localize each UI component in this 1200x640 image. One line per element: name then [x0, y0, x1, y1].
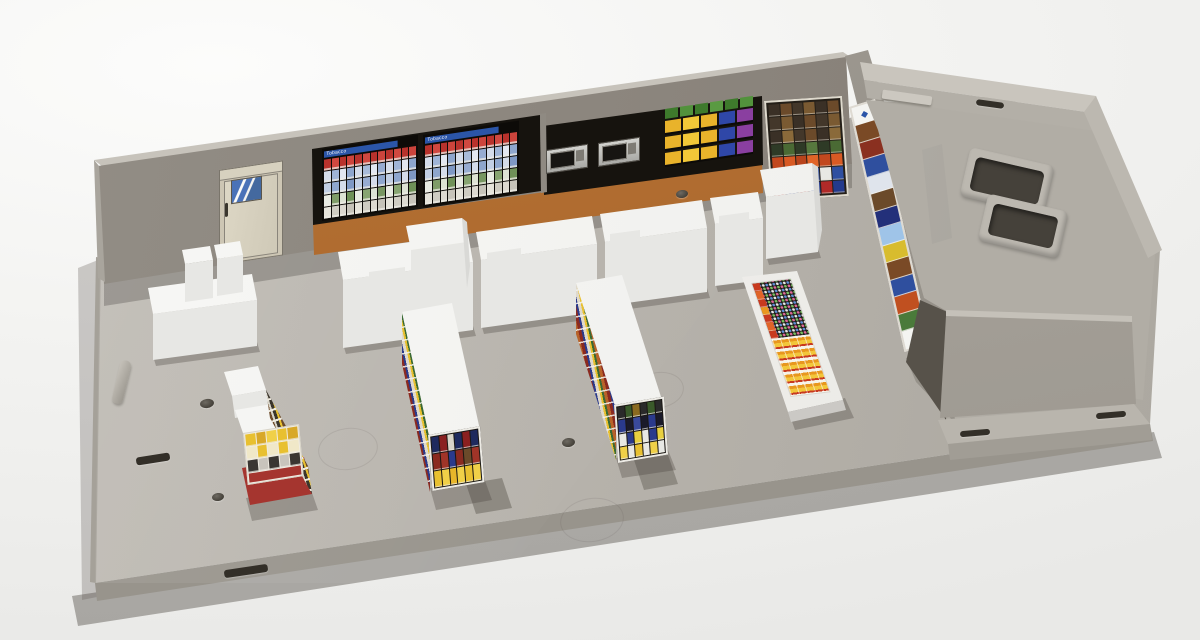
product-cell — [448, 153, 455, 165]
product-cell — [347, 179, 354, 191]
product-cell — [781, 117, 793, 130]
product-cell — [656, 413, 663, 426]
product-cell — [503, 157, 510, 169]
product-cell — [719, 127, 735, 141]
product-cell — [441, 166, 448, 178]
product-cell — [402, 171, 409, 183]
product-cell — [619, 433, 626, 446]
product-cell — [456, 176, 463, 188]
product-cell — [464, 151, 471, 163]
product-cell — [277, 428, 288, 442]
product-cell — [442, 469, 450, 486]
product-cell — [827, 100, 839, 113]
product-cell — [290, 452, 301, 466]
product-cell — [737, 140, 753, 154]
product-cell — [470, 430, 478, 447]
product-cell — [794, 129, 806, 142]
product-cell — [464, 163, 471, 175]
product-cell — [371, 164, 378, 176]
product-cell — [355, 178, 362, 190]
product-cell — [386, 149, 393, 161]
microwave-controls — [576, 149, 584, 161]
product-cell — [324, 171, 331, 183]
product-cell — [363, 201, 370, 213]
product-cell — [355, 166, 362, 178]
product-cell — [386, 173, 393, 185]
product-cell — [371, 188, 378, 200]
product-cell — [828, 113, 840, 126]
product-cell — [710, 100, 723, 112]
product-cell — [402, 183, 409, 195]
product-cell — [439, 435, 447, 452]
product-cell — [655, 400, 662, 413]
product-cell — [441, 154, 448, 166]
product-cell — [472, 150, 479, 162]
product-cell — [448, 451, 456, 468]
product-cell — [627, 445, 634, 458]
product-cell — [701, 129, 717, 143]
product-cell — [737, 124, 753, 138]
product-cell — [355, 190, 362, 202]
product-cell — [618, 420, 625, 433]
product-cell — [409, 170, 416, 182]
product-cell — [371, 200, 378, 212]
product-cell — [831, 153, 843, 166]
product-cell — [394, 160, 401, 172]
product-cell — [640, 403, 647, 416]
product-cell — [463, 431, 471, 448]
product-cell — [455, 432, 463, 449]
product-cell — [816, 101, 828, 114]
product-cell — [433, 453, 441, 470]
product-cell — [425, 193, 432, 205]
product-cell — [770, 131, 782, 144]
product-cell — [830, 140, 842, 153]
product-cell — [347, 203, 354, 215]
product-cell — [633, 417, 640, 430]
product-cell — [817, 128, 829, 141]
product-cell — [495, 170, 502, 182]
product-cell — [510, 144, 517, 156]
product-cell — [665, 151, 681, 165]
product-cell — [440, 452, 448, 469]
product-cell — [332, 194, 339, 206]
product-cell — [818, 141, 830, 154]
product-cell — [266, 430, 277, 444]
product-cell — [495, 158, 502, 170]
product-cell — [503, 169, 510, 181]
product-cell — [725, 98, 738, 110]
product-cell — [642, 442, 649, 455]
product-cell — [503, 181, 510, 193]
product-cell — [806, 128, 818, 141]
product-cell — [257, 444, 268, 458]
product-cell — [441, 142, 448, 154]
product-cell — [647, 401, 654, 414]
basin-interior — [987, 203, 1059, 249]
product-cell — [472, 174, 479, 186]
product-cell — [768, 104, 780, 117]
product-cell — [472, 162, 479, 174]
product-cell — [456, 188, 463, 200]
product-cell — [378, 199, 385, 211]
product-cell — [324, 207, 331, 219]
product-cell — [340, 204, 347, 216]
product-cell — [431, 436, 439, 453]
product-cell — [371, 152, 378, 164]
product-cell — [487, 171, 494, 183]
product-cell — [289, 439, 300, 453]
product-cell — [487, 159, 494, 171]
product-cell — [740, 96, 753, 108]
product-cell — [510, 180, 517, 192]
photo-stage: Tobacco Tobacco — [0, 0, 1200, 640]
product-cell — [347, 155, 354, 167]
product-cell — [701, 113, 717, 127]
product-cell — [402, 147, 409, 159]
product-cell — [832, 167, 844, 180]
product-cell — [642, 429, 649, 442]
product-cell — [625, 405, 632, 418]
product-cell — [683, 116, 699, 130]
product-cell — [683, 148, 699, 162]
product-cell — [464, 187, 471, 199]
product-cell — [819, 154, 831, 167]
product-cell — [665, 135, 681, 149]
product-cell — [650, 441, 657, 454]
product-cell — [495, 146, 502, 158]
product-cell — [783, 143, 795, 156]
product-cell — [394, 196, 401, 208]
product-cell — [701, 145, 717, 159]
door-handle — [225, 203, 228, 217]
product-cell — [473, 464, 481, 481]
product-cell — [456, 449, 464, 466]
product-cell — [780, 103, 792, 116]
product-cell — [340, 168, 347, 180]
product-cell — [386, 185, 393, 197]
product-cell — [657, 427, 664, 440]
product-cell — [402, 195, 409, 207]
product-cell — [363, 153, 370, 165]
product-cell — [503, 145, 510, 157]
product-cell — [378, 151, 385, 163]
product-cell — [433, 144, 440, 156]
product-cell — [332, 158, 339, 170]
product-cell — [340, 180, 347, 192]
product-cell — [479, 161, 486, 173]
product-cell — [363, 189, 370, 201]
product-cell — [447, 434, 455, 451]
door-window — [231, 176, 262, 205]
product-cell — [409, 146, 416, 158]
product-cell — [620, 446, 627, 459]
product-cell — [782, 130, 794, 143]
product-cell — [464, 175, 471, 187]
product-cell — [457, 466, 465, 483]
product-cell — [456, 152, 463, 164]
product-cell — [248, 459, 259, 473]
product-cell — [465, 465, 473, 482]
product-cell — [649, 428, 656, 441]
product-cell — [371, 176, 378, 188]
product-cell — [627, 432, 634, 445]
product-cell — [441, 178, 448, 190]
product-cell — [683, 132, 699, 146]
product-cell — [347, 191, 354, 203]
product-cell — [278, 441, 289, 455]
product-cell — [792, 102, 804, 115]
product-cell — [433, 180, 440, 192]
product-cell — [769, 117, 781, 130]
product-cell — [510, 168, 517, 180]
product-cell — [402, 159, 409, 171]
product-cell — [425, 181, 432, 193]
product-cell — [472, 186, 479, 198]
product-cell — [425, 145, 432, 157]
product-cell — [268, 443, 279, 457]
product-cell — [805, 115, 817, 128]
product-cell — [347, 167, 354, 179]
product-cell — [472, 138, 479, 150]
product-cell — [464, 139, 471, 151]
product-cell — [665, 119, 681, 133]
microwave-window — [602, 143, 627, 163]
product-cell — [425, 157, 432, 169]
product-cell — [635, 444, 642, 457]
product-cell — [450, 468, 458, 485]
product-cell — [324, 195, 331, 207]
product-cell — [448, 141, 455, 153]
product-cell — [807, 142, 819, 155]
product-cell — [355, 202, 362, 214]
product-cell — [719, 111, 735, 125]
product-cell — [434, 470, 442, 487]
product-cell — [433, 156, 440, 168]
product-cell — [332, 170, 339, 182]
product-cell — [617, 406, 624, 419]
product-cell — [378, 175, 385, 187]
product-cell — [793, 116, 805, 129]
product-cell — [657, 440, 664, 453]
product-cell — [464, 448, 472, 465]
product-cell — [448, 177, 455, 189]
product-cell — [456, 164, 463, 176]
product-cell — [833, 180, 845, 193]
product-cell — [648, 415, 655, 428]
product-cell — [737, 108, 753, 122]
product-cell — [441, 190, 448, 202]
product-cell — [258, 457, 269, 471]
product-cell — [332, 182, 339, 194]
product-cell — [340, 156, 347, 168]
product-cell — [394, 172, 401, 184]
product-cell — [456, 140, 463, 152]
product-cell — [495, 182, 502, 194]
cigarette-rack-left: Tobacco — [322, 135, 418, 221]
product-cell — [817, 114, 829, 127]
product-cell — [246, 446, 257, 460]
product-cell — [632, 404, 639, 417]
microwave-controls — [628, 142, 636, 154]
product-cell — [821, 181, 833, 194]
product-cell — [719, 143, 735, 157]
product-cell — [394, 148, 401, 160]
product-cell — [363, 177, 370, 189]
product-cell — [409, 194, 416, 206]
cigarette-rack-right: Tobacco — [423, 121, 519, 207]
product-cell — [279, 454, 290, 468]
product-cell — [665, 107, 678, 119]
product-cell — [409, 182, 416, 194]
product-cell — [386, 161, 393, 173]
candy-shelf-end-decal — [243, 424, 304, 485]
product-cell — [487, 183, 494, 195]
product-cell — [394, 184, 401, 196]
product-cell — [795, 142, 807, 155]
product-cell — [324, 159, 331, 171]
product-cell — [386, 197, 393, 209]
product-cell — [695, 103, 708, 115]
product-cell — [626, 418, 633, 431]
product-cell — [269, 456, 280, 470]
product-cell — [340, 192, 347, 204]
product-cell — [378, 163, 385, 175]
product-cell — [487, 135, 494, 147]
gondola-end-decal — [614, 397, 668, 464]
product-cell — [409, 158, 416, 170]
product-cell — [479, 185, 486, 197]
product-cell — [771, 144, 783, 157]
gondola-end-decal — [428, 426, 484, 491]
product-cell — [324, 183, 331, 195]
product-cell — [245, 433, 256, 447]
product-cell — [433, 192, 440, 204]
product-cell — [487, 147, 494, 159]
product-cell — [641, 416, 648, 429]
product-cell — [288, 426, 299, 440]
product-cell — [479, 149, 486, 161]
product-cell — [510, 156, 517, 168]
product-cell — [448, 165, 455, 177]
product-cell — [332, 206, 339, 218]
product-cell — [472, 447, 480, 464]
product-cell — [510, 132, 517, 144]
product-cell — [503, 133, 510, 145]
product-cell — [378, 187, 385, 199]
microwave-window — [550, 150, 575, 170]
product-cell — [355, 154, 362, 166]
product-cell — [448, 189, 455, 201]
product-cell — [479, 173, 486, 185]
product-cell — [433, 168, 440, 180]
product-cell — [256, 431, 267, 445]
product-cell — [634, 430, 641, 443]
product-cell — [363, 165, 370, 177]
product-cell — [680, 105, 693, 117]
product-cell — [829, 127, 841, 140]
product-cell — [495, 134, 502, 146]
product-cell — [425, 169, 432, 181]
product-cell — [820, 167, 832, 180]
product-cell — [804, 102, 816, 115]
product-cell — [479, 137, 486, 149]
